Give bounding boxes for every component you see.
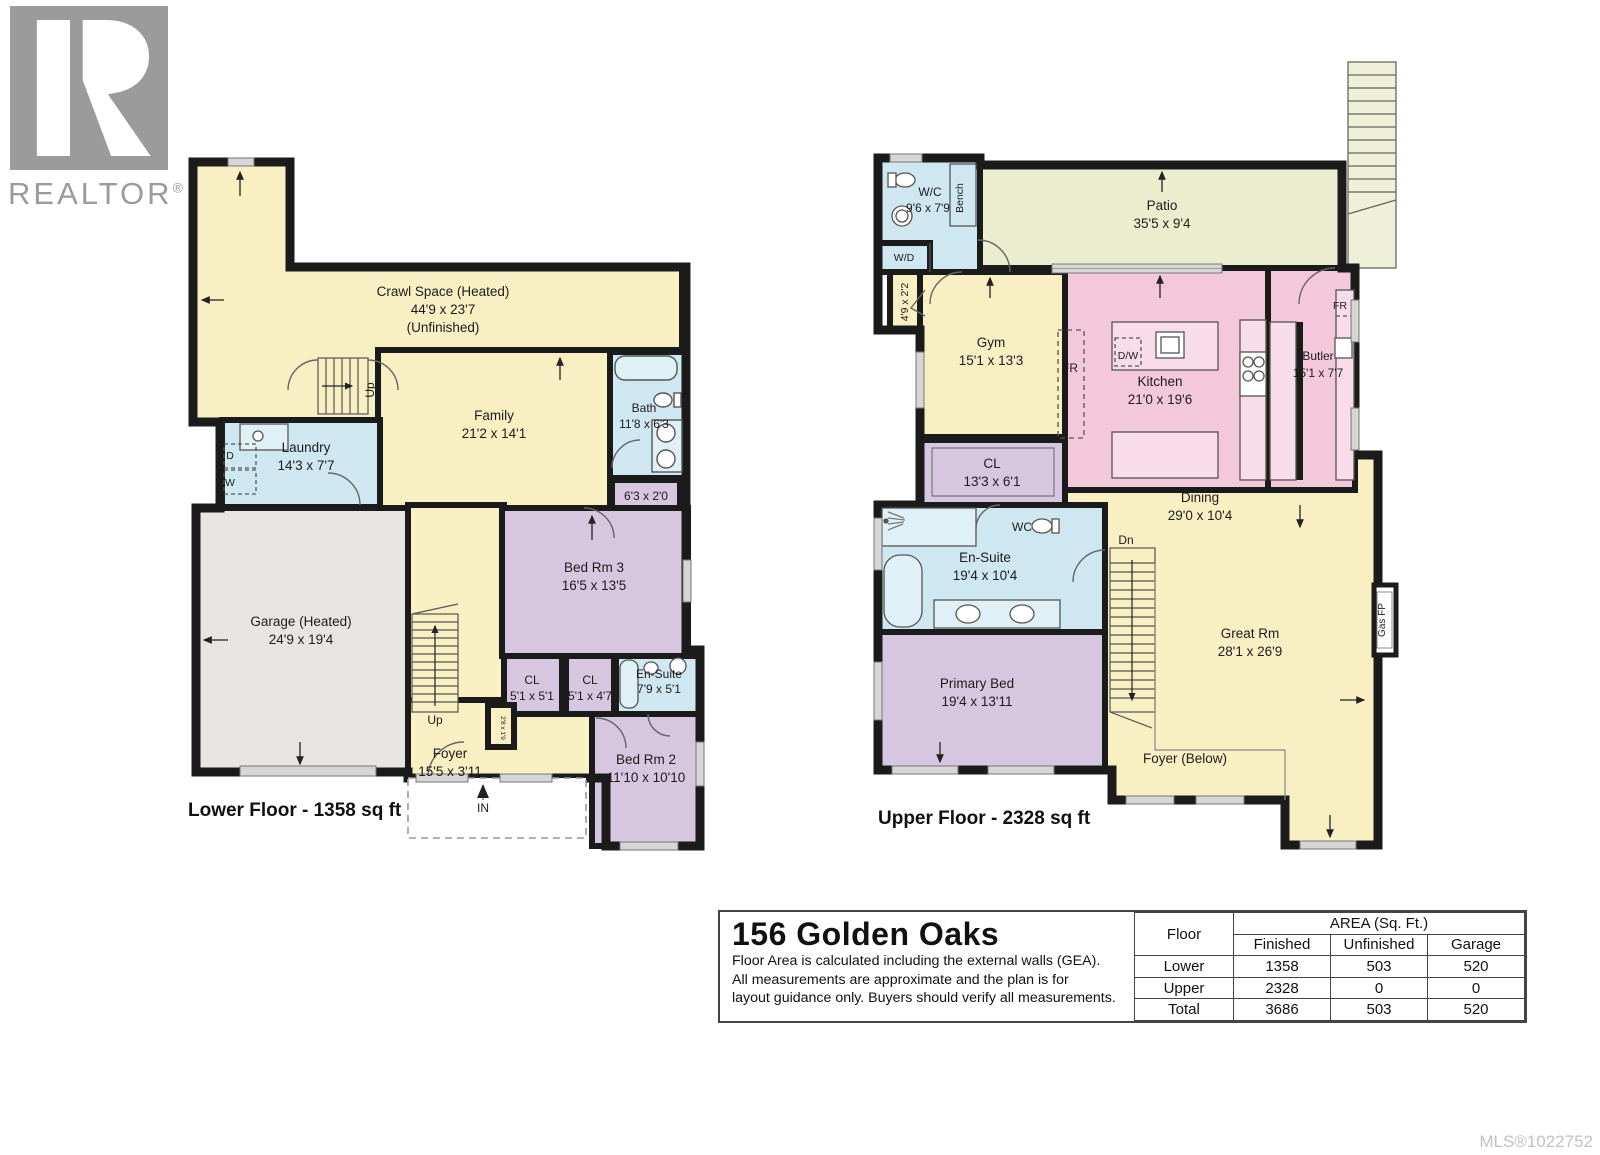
realtor-wordmark: REALTOR® <box>8 176 198 212</box>
garage-cell: 520 <box>1428 999 1525 1021</box>
info-text: 156 Golden Oaks Floor Area is calculated… <box>720 912 1134 1021</box>
ensuite-lower-dims: 7'9 x 5'1 <box>637 682 681 696</box>
butler-dims: 15'1 x 7'7 <box>1293 366 1344 380</box>
upper-floor-plan: W/C 9'6 x 7'9 Bench W/D 4'9 x 2'2 Patio … <box>860 50 1445 860</box>
floor-cell: Lower <box>1135 956 1234 978</box>
bath-label: Bath <box>632 401 657 415</box>
gas-fireplace-label: Gas FP <box>1377 603 1388 637</box>
bath-dims: 11'8 x 6'3 <box>619 417 669 431</box>
upper-closet-room <box>920 440 1065 505</box>
wc2-label: WC <box>1012 520 1032 534</box>
foyer-dims: 15'5 x 3'11 <box>418 764 481 779</box>
patio-dims: 35'5 x 9'4 <box>1134 216 1191 231</box>
disclaimer-line3: layout guidance only. Buyers should veri… <box>732 989 1124 1008</box>
dining-dims: 29'0 x 10'4 <box>1168 508 1233 523</box>
great-room-dims: 28'1 x 26'9 <box>1218 644 1282 659</box>
ensuite-upper-label: En-Suite <box>959 550 1011 565</box>
ensuite-lower-label: En-Suite <box>636 667 682 681</box>
realtor-r-icon <box>10 6 168 170</box>
table-row: Lower 1358 503 520 <box>1135 956 1525 978</box>
finished-cell: 3686 <box>1234 999 1331 1021</box>
patio-label: Patio <box>1147 198 1178 213</box>
disclaimer-line1: Floor Area is calculated including the e… <box>732 952 1124 971</box>
wd-label: W/D <box>894 252 915 264</box>
family-dims: 21'2 x 14'1 <box>462 426 526 441</box>
table-row: Floor AREA (Sq. Ft.) <box>1135 913 1525 935</box>
laundry-label: Laundry <box>282 440 331 455</box>
dishwasher-label: D/W <box>1118 350 1139 362</box>
upper-closet-label: CL <box>983 456 1001 471</box>
fridge1-label: FR <box>1062 361 1078 375</box>
finished-cell: 1358 <box>1234 956 1331 978</box>
butler-label: Butler <box>1302 349 1333 363</box>
area-header-cell: AREA (Sq. Ft.) <box>1234 913 1525 935</box>
upper-floor-caption: Upper Floor - 2328 sq ft <box>878 808 1090 830</box>
garage-dims: 24'9 x 19'4 <box>269 632 334 647</box>
crawl-space-dims: 44'9 x 23'7 <box>411 302 475 317</box>
table-row: Upper 2328 0 0 <box>1135 977 1525 999</box>
property-title: 156 Golden Oaks <box>732 916 1124 952</box>
floor-header-cell: Floor <box>1135 913 1234 956</box>
fridge2-label: FR <box>1333 300 1347 312</box>
table-row: Total 3686 503 520 <box>1135 999 1525 1021</box>
garage-cell: 0 <box>1428 977 1525 999</box>
info-block: 156 Golden Oaks Floor Area is calculated… <box>718 910 1527 1023</box>
bench-label: Bench <box>954 183 966 213</box>
primary-bed-label: Primary Bed <box>940 676 1014 691</box>
crawl-space-note: (Unfinished) <box>407 320 480 335</box>
registered-mark: ® <box>173 180 186 196</box>
stairs-down-label: Dn <box>1118 533 1133 547</box>
stairs-up-top <box>318 358 368 414</box>
bedroom3-dims: 16'5 x 13'5 <box>562 578 626 593</box>
lower-floor-plan: Crawl Space (Heated) 44'9 x 23'7 (Unfini… <box>185 150 705 860</box>
entry-porch <box>408 778 586 838</box>
closet2-dims: 5'1 x 4'7 <box>568 689 612 703</box>
nook-dims: 2'8 x 1'9 <box>499 716 506 740</box>
entry-in-label: IN <box>477 801 489 815</box>
gym-label: Gym <box>977 335 1006 350</box>
floor-plan-page: { "branding": { "logo_letter": "R", "log… <box>0 0 1600 1155</box>
ensuite-upper-dims: 19'4 x 10'4 <box>953 568 1018 583</box>
garage-header-cell: Garage <box>1428 934 1525 956</box>
realtor-logo <box>10 6 168 170</box>
laundry-dims: 14'3 x 7'7 <box>278 458 335 473</box>
mls-number: MLS®1022752 <box>1479 1132 1593 1152</box>
garage-cell: 520 <box>1428 956 1525 978</box>
finished-header-cell: Finished <box>1234 934 1331 956</box>
hall-closet-dims: 6'3 x 2'0 <box>624 489 668 503</box>
finished-cell: 2328 <box>1234 977 1331 999</box>
upper-closet-dims: 13'3 x 6'1 <box>964 474 1021 489</box>
disclaimer-line2: All measurements are approximate and the… <box>732 971 1124 990</box>
small-closet-dims: 4'9 x 2'2 <box>899 283 911 322</box>
crawl-space-label: Crawl Space (Heated) <box>377 284 510 299</box>
unfinished-header-cell: Unfinished <box>1331 934 1428 956</box>
bedroom2-label: Bed Rm 2 <box>616 752 676 767</box>
garage-label: Garage (Heated) <box>250 614 351 629</box>
gym-dims: 15'1 x 13'3 <box>959 353 1023 368</box>
unfinished-cell: 503 <box>1331 956 1428 978</box>
floor-cell: Total <box>1135 999 1234 1021</box>
bedroom2-dims: 11'10 x 10'10 <box>607 770 685 785</box>
great-room-label: Great Rm <box>1221 626 1280 641</box>
dining-label: Dining <box>1181 490 1219 505</box>
kitchen-dims: 21'0 x 19'6 <box>1128 392 1192 407</box>
foyer-below-label: Foyer (Below) <box>1143 751 1227 766</box>
area-table: Floor AREA (Sq. Ft.) Finished Unfinished… <box>1134 912 1525 1021</box>
unfinished-cell: 503 <box>1331 999 1428 1021</box>
closet2-label: CL <box>582 673 598 687</box>
closet1-label: CL <box>524 673 540 687</box>
floor-cell: Upper <box>1135 977 1234 999</box>
lower-floor-caption: Lower Floor - 1358 sq ft <box>188 800 401 822</box>
family-label: Family <box>474 408 514 423</box>
exterior-stairs <box>1348 62 1396 268</box>
unfinished-cell: 0 <box>1331 977 1428 999</box>
stairs-up-top-label: Up <box>363 382 377 398</box>
wc-label: W/C <box>918 185 942 199</box>
wc-dims: 9'6 x 7'9 <box>906 201 950 215</box>
kitchen-label: Kitchen <box>1137 374 1182 389</box>
washer-label: W <box>225 477 235 489</box>
stairs-up-foyer <box>412 604 458 712</box>
closet1-dims: 5'1 x 5'1 <box>510 689 554 703</box>
stairs-up-label: Up <box>427 713 443 727</box>
bedroom3-label: Bed Rm 3 <box>564 560 624 575</box>
foyer-label: Foyer <box>433 746 468 761</box>
primary-bed-dims: 19'4 x 13'11 <box>942 694 1013 709</box>
dryer-label: D <box>226 450 234 462</box>
